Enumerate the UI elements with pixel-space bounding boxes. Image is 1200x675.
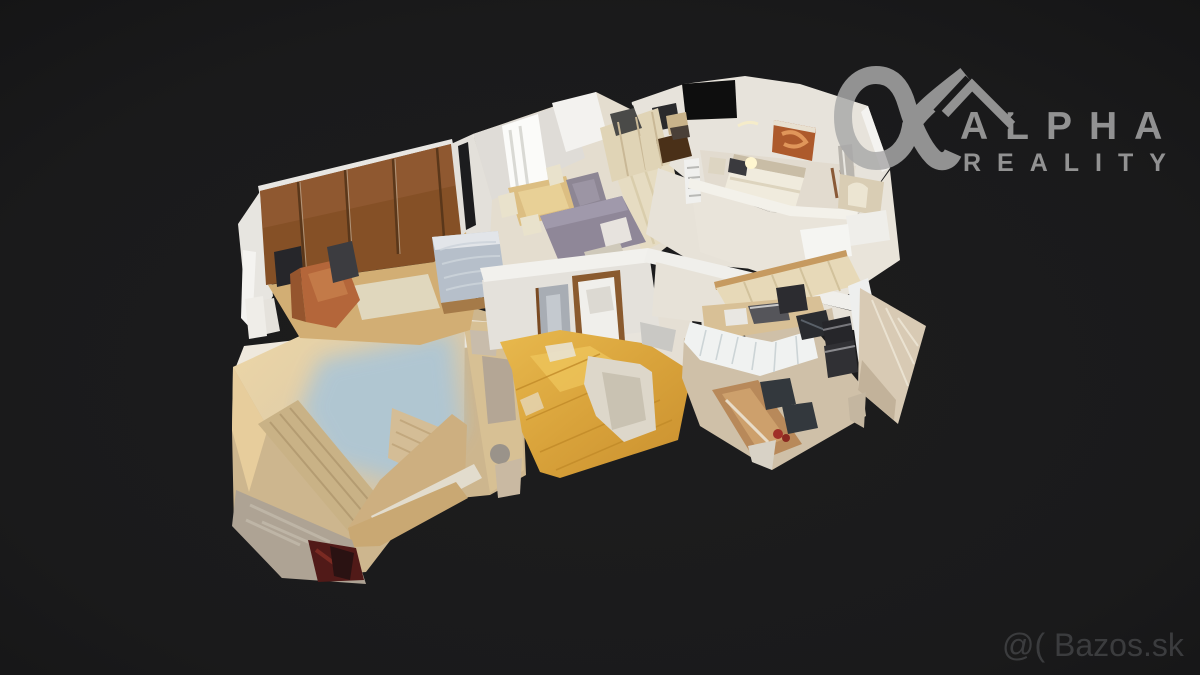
svg-text:REALITY: REALITY xyxy=(963,149,1182,177)
svg-text:@( Bazos.sk: @( Bazos.sk xyxy=(1002,627,1185,663)
